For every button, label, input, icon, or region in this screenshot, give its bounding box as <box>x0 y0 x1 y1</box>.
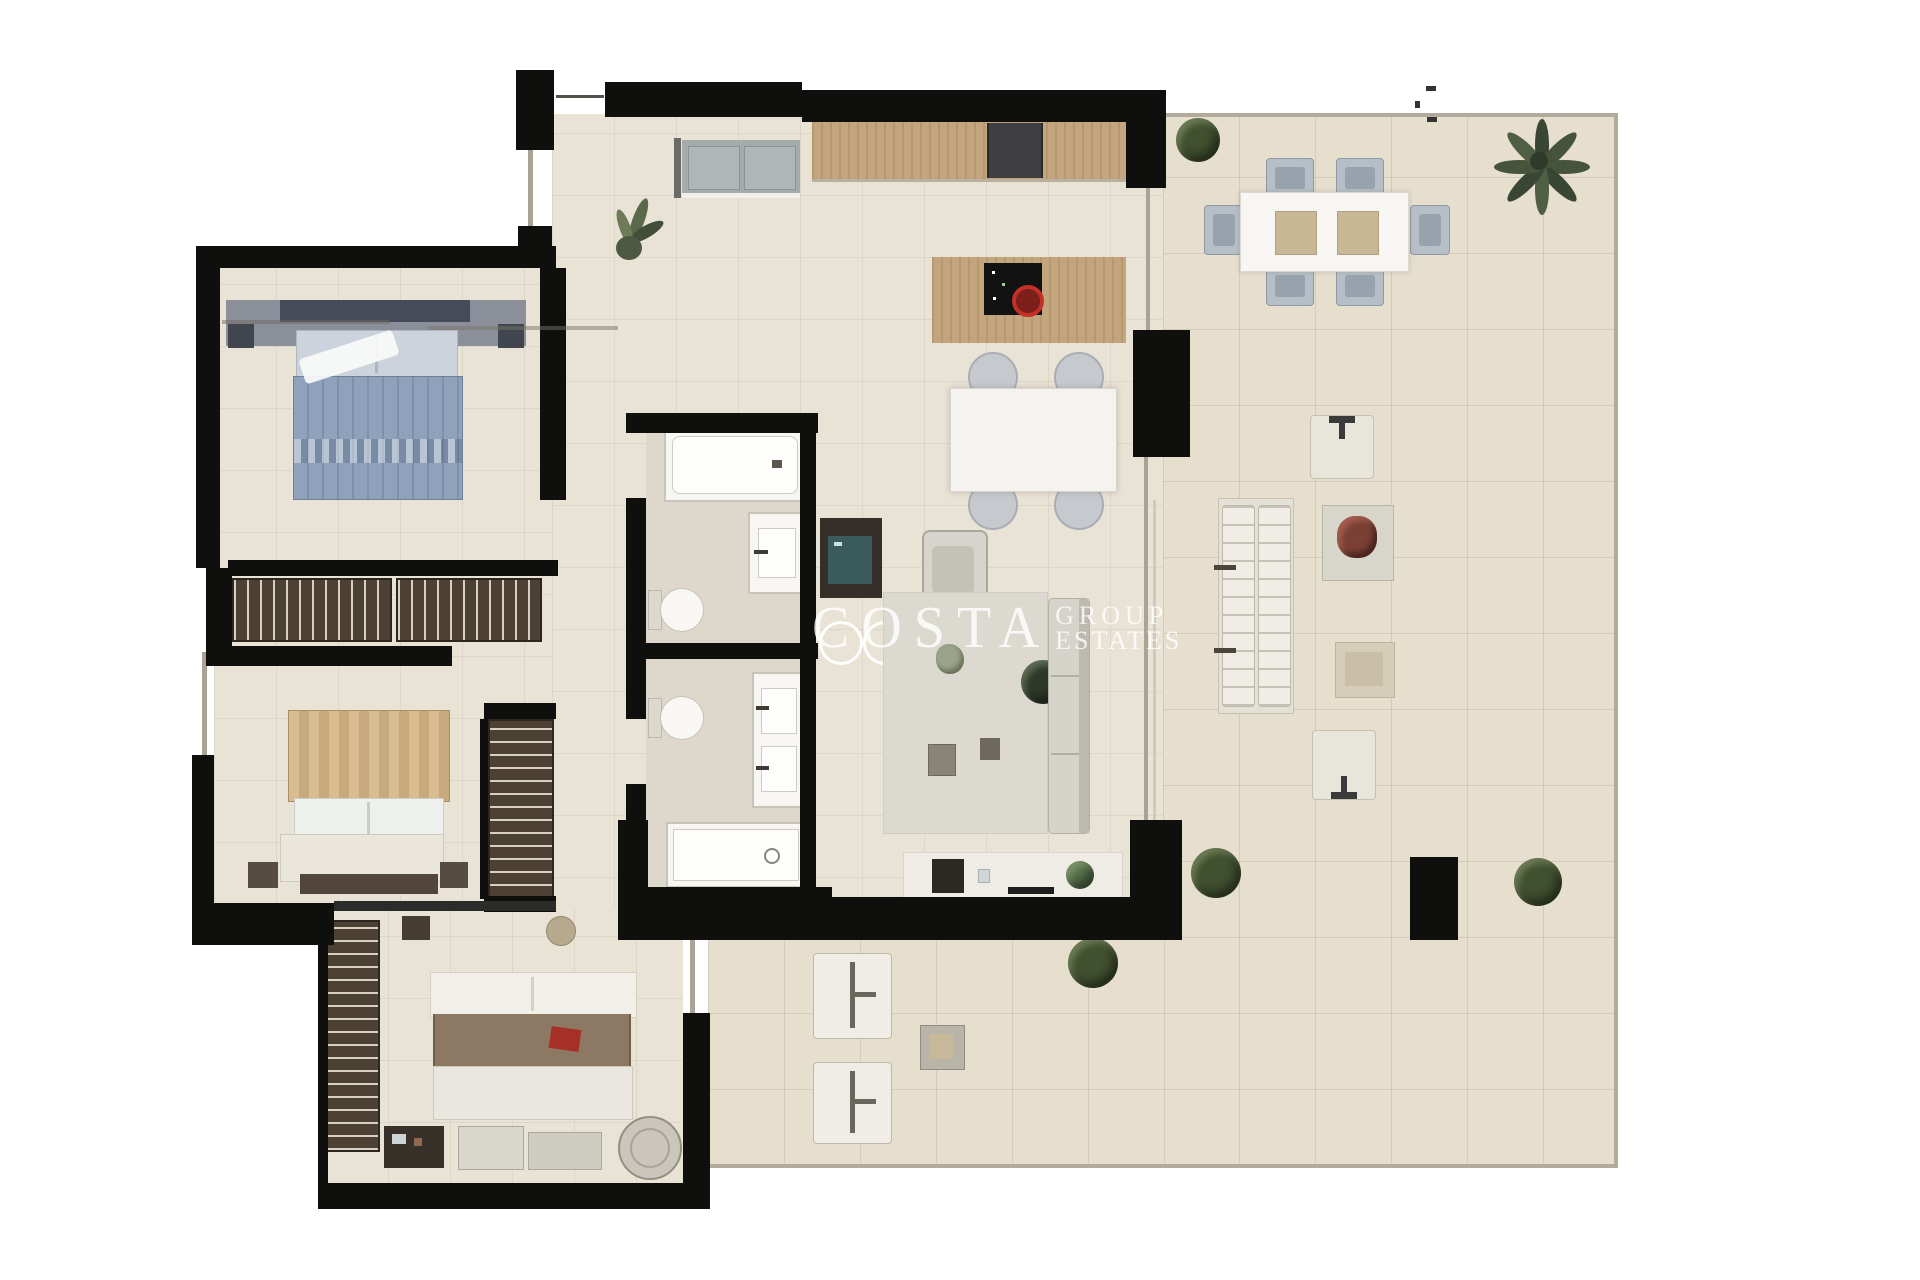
entry-door-leaf <box>556 95 604 98</box>
bed1-nightstand-left <box>228 324 254 348</box>
wall-bedroom1-top <box>196 246 556 268</box>
bed1-headboard-center <box>280 300 470 322</box>
south-side-table <box>920 1025 965 1070</box>
wall-wardrobe-left <box>206 568 232 652</box>
floor-plan: COSTA GROUP ESTATES <box>0 0 1920 1280</box>
wall-entrance-left <box>516 70 554 150</box>
table-inner-2 <box>1337 211 1379 255</box>
wall-entrance-top <box>605 82 802 117</box>
bush-terrace-top <box>1176 118 1220 162</box>
chair-cushion <box>1419 214 1441 246</box>
master-bed-duvet <box>433 1014 631 1068</box>
watermark-word-top: GROUP <box>1055 604 1182 629</box>
laundry-appliances <box>682 140 800 194</box>
wall-bath-left-2 <box>626 659 646 719</box>
shower-drain-icon <box>764 848 780 864</box>
watermark-suffix: GROUP ESTATES <box>1055 604 1182 653</box>
dining-table <box>950 388 1117 492</box>
wall-bedroom2-bottom <box>192 903 334 945</box>
s-lounger2-cross <box>850 1099 876 1104</box>
shower <box>666 822 806 888</box>
cooktop-dot-2 <box>1002 283 1005 286</box>
master-foot-bench-1 <box>458 1126 524 1170</box>
wall-corridor-left <box>540 268 566 500</box>
bed1-pattern-band <box>294 439 462 463</box>
terrace-gate-mark-1 <box>1426 86 1436 91</box>
terrace-gate-mark-3 <box>1427 117 1437 122</box>
master-round-chair <box>618 1116 682 1180</box>
lounger-handle-2 <box>1214 648 1236 653</box>
palm-tree-icon <box>1482 110 1594 222</box>
wall-bath-left-1 <box>626 498 646 644</box>
wardrobe-bedroom-2 <box>488 719 554 901</box>
wall-master-right <box>683 1013 710 1209</box>
wall-bedroom1-left <box>196 246 220 568</box>
chair-cushion <box>1345 167 1375 189</box>
wall-living-corner <box>1130 820 1182 940</box>
chair-cushion <box>1275 275 1305 297</box>
vanity-2-double <box>752 672 806 808</box>
wall-dining-stub <box>1133 330 1190 457</box>
wall-bedroom2-stub-top <box>484 703 556 719</box>
flower-bouquet-icon <box>1337 516 1377 558</box>
terrace-chair-bottom-1 <box>1266 266 1314 306</box>
bed2-canopy <box>288 710 450 802</box>
tv-screen-icon <box>828 536 872 584</box>
tv-cabinet <box>820 518 882 598</box>
plant-pot <box>616 236 642 260</box>
tap-2b-icon <box>756 766 769 770</box>
lounge-chair-back-s <box>1331 792 1357 799</box>
hall-lintel-line <box>428 326 618 330</box>
coffee-table-2 <box>980 738 1000 760</box>
lounge-chair-south <box>1312 730 1376 800</box>
sun-lounger-1 <box>1222 505 1255 707</box>
armchair-seat <box>932 546 974 594</box>
wall-kitchen-right-stub <box>1126 110 1166 188</box>
wardrobe-master <box>326 920 380 1152</box>
bed2-nightstand-left <box>248 862 278 888</box>
cooktop-dot-3 <box>993 297 996 300</box>
laundry-shelf-line <box>682 193 800 198</box>
terrace-pillar <box>1410 857 1458 940</box>
master-small-bench <box>402 916 430 940</box>
kitchen-range <box>987 123 1043 178</box>
watermark: COSTA GROUP ESTATES <box>812 600 1172 656</box>
washer-icon <box>688 146 740 190</box>
bed2-foot-bench <box>300 874 438 894</box>
cooktop-dot-1 <box>992 271 995 274</box>
wall-master-top-left <box>334 901 556 911</box>
watermark-word-bottom: ESTATES <box>1055 629 1182 654</box>
kitchen-counter-shadow <box>812 179 1128 182</box>
wall-master-left-thin <box>318 911 328 1183</box>
kitchen-counter <box>812 122 1128 180</box>
terrace-dining-table <box>1240 192 1409 272</box>
shower-inner <box>673 829 799 881</box>
tap-2a-icon <box>756 706 769 710</box>
dresser-item-2 <box>414 1138 422 1146</box>
bush-south-1 <box>1068 938 1118 988</box>
flower-table <box>1322 505 1394 581</box>
lounge-chair-stem <box>1339 423 1345 439</box>
side-table-top <box>929 1034 954 1059</box>
sofa-cushion-line-1 <box>1051 675 1079 677</box>
red-pot-icon <box>1012 285 1044 317</box>
bed2-pillow-split <box>367 802 370 834</box>
south-lounger-1 <box>813 953 892 1039</box>
terrace-chair-bottom-2 <box>1336 266 1384 306</box>
master-pouf <box>546 916 576 946</box>
sofa-cushion-line-2 <box>1051 753 1079 755</box>
south-lounger-2 <box>813 1062 892 1144</box>
master-dresser <box>384 1126 444 1168</box>
bed1-duvet <box>293 376 463 500</box>
dresser-item-1 <box>392 1134 406 1144</box>
island-cooktop <box>984 263 1042 315</box>
toilet-1 <box>648 586 704 632</box>
master-red-cushion <box>549 1026 582 1052</box>
sink-2a <box>761 688 797 734</box>
watermark-word-large: COSTA <box>812 599 1051 658</box>
lounge-chair-back <box>1329 416 1355 423</box>
master-pillow-split <box>531 977 534 1011</box>
wall-bath-bottom <box>618 887 832 940</box>
bush-south-2 <box>1191 848 1241 898</box>
lounger-handle-1 <box>1214 565 1236 570</box>
media-sideboard <box>903 852 1123 900</box>
master-bed-pillows <box>430 972 637 1018</box>
bush-south-3 <box>1514 858 1562 906</box>
terrace-chair-right <box>1410 205 1450 255</box>
window-entrance-left <box>528 150 533 226</box>
coffee-table-1 <box>928 744 956 776</box>
lounge-chair-stem-s <box>1341 776 1347 792</box>
toilet-2 <box>648 694 704 740</box>
soundbar-icon <box>1008 887 1054 894</box>
window-left-wing <box>202 652 207 755</box>
bed2-nightstand-right <box>440 862 468 888</box>
toilet-1-bowl <box>660 588 704 632</box>
wardrobe-hall-right <box>396 578 542 642</box>
glass-icon <box>978 869 990 883</box>
sun-lounger-2 <box>1258 505 1291 707</box>
ottoman-inner <box>1345 652 1383 686</box>
dryer-icon <box>744 146 796 190</box>
wall-master-bottom <box>318 1183 710 1209</box>
bed2-pillows <box>294 798 444 838</box>
master-foot-blanket <box>433 1066 633 1120</box>
tap-1-icon <box>754 550 768 554</box>
wall-bedroom2-top <box>206 646 452 666</box>
laundry-side-panel <box>674 138 681 198</box>
palm-center <box>1530 152 1548 170</box>
terrace-border-right <box>1614 113 1618 1168</box>
bathtub <box>664 428 806 502</box>
wall-wardrobe-back <box>228 560 558 576</box>
terrace-chair-left <box>1204 205 1244 255</box>
chair-cushion <box>1345 275 1375 297</box>
chair-cushion <box>1213 214 1235 246</box>
chair-cushion <box>1275 167 1305 189</box>
tv-glint <box>834 542 842 546</box>
s-lounger1-cross <box>850 992 876 997</box>
wall-bath-top <box>626 413 818 433</box>
wall-bedroom2-right-thin <box>480 719 488 899</box>
vanity-1 <box>748 512 806 594</box>
toilet-2-bowl <box>660 696 704 740</box>
lounge-ottoman <box>1335 642 1395 698</box>
framed-art-icon <box>932 859 964 893</box>
bedroom1-wall-line <box>222 320 390 324</box>
wall-living-bottom <box>832 897 1132 940</box>
entrance-plant-icon <box>598 162 664 266</box>
table-inner-1 <box>1275 211 1317 255</box>
sideboard-plant-icon <box>1066 861 1094 889</box>
glass-door-pane-2 <box>1153 500 1156 820</box>
wall-kitchen-top <box>802 90 1166 122</box>
lounge-chair-north <box>1310 415 1374 479</box>
bath-faucet-icon <box>772 460 782 468</box>
round-chair-inner <box>630 1128 670 1168</box>
wall-bath-divider <box>626 643 818 659</box>
window-kitchen-terrace <box>1146 188 1150 330</box>
wardrobe-hall-left <box>232 578 392 642</box>
terrace-border-bottom <box>706 1164 1618 1168</box>
master-foot-bench-2 <box>528 1132 602 1170</box>
terrace-gate-mark-2 <box>1415 101 1420 108</box>
